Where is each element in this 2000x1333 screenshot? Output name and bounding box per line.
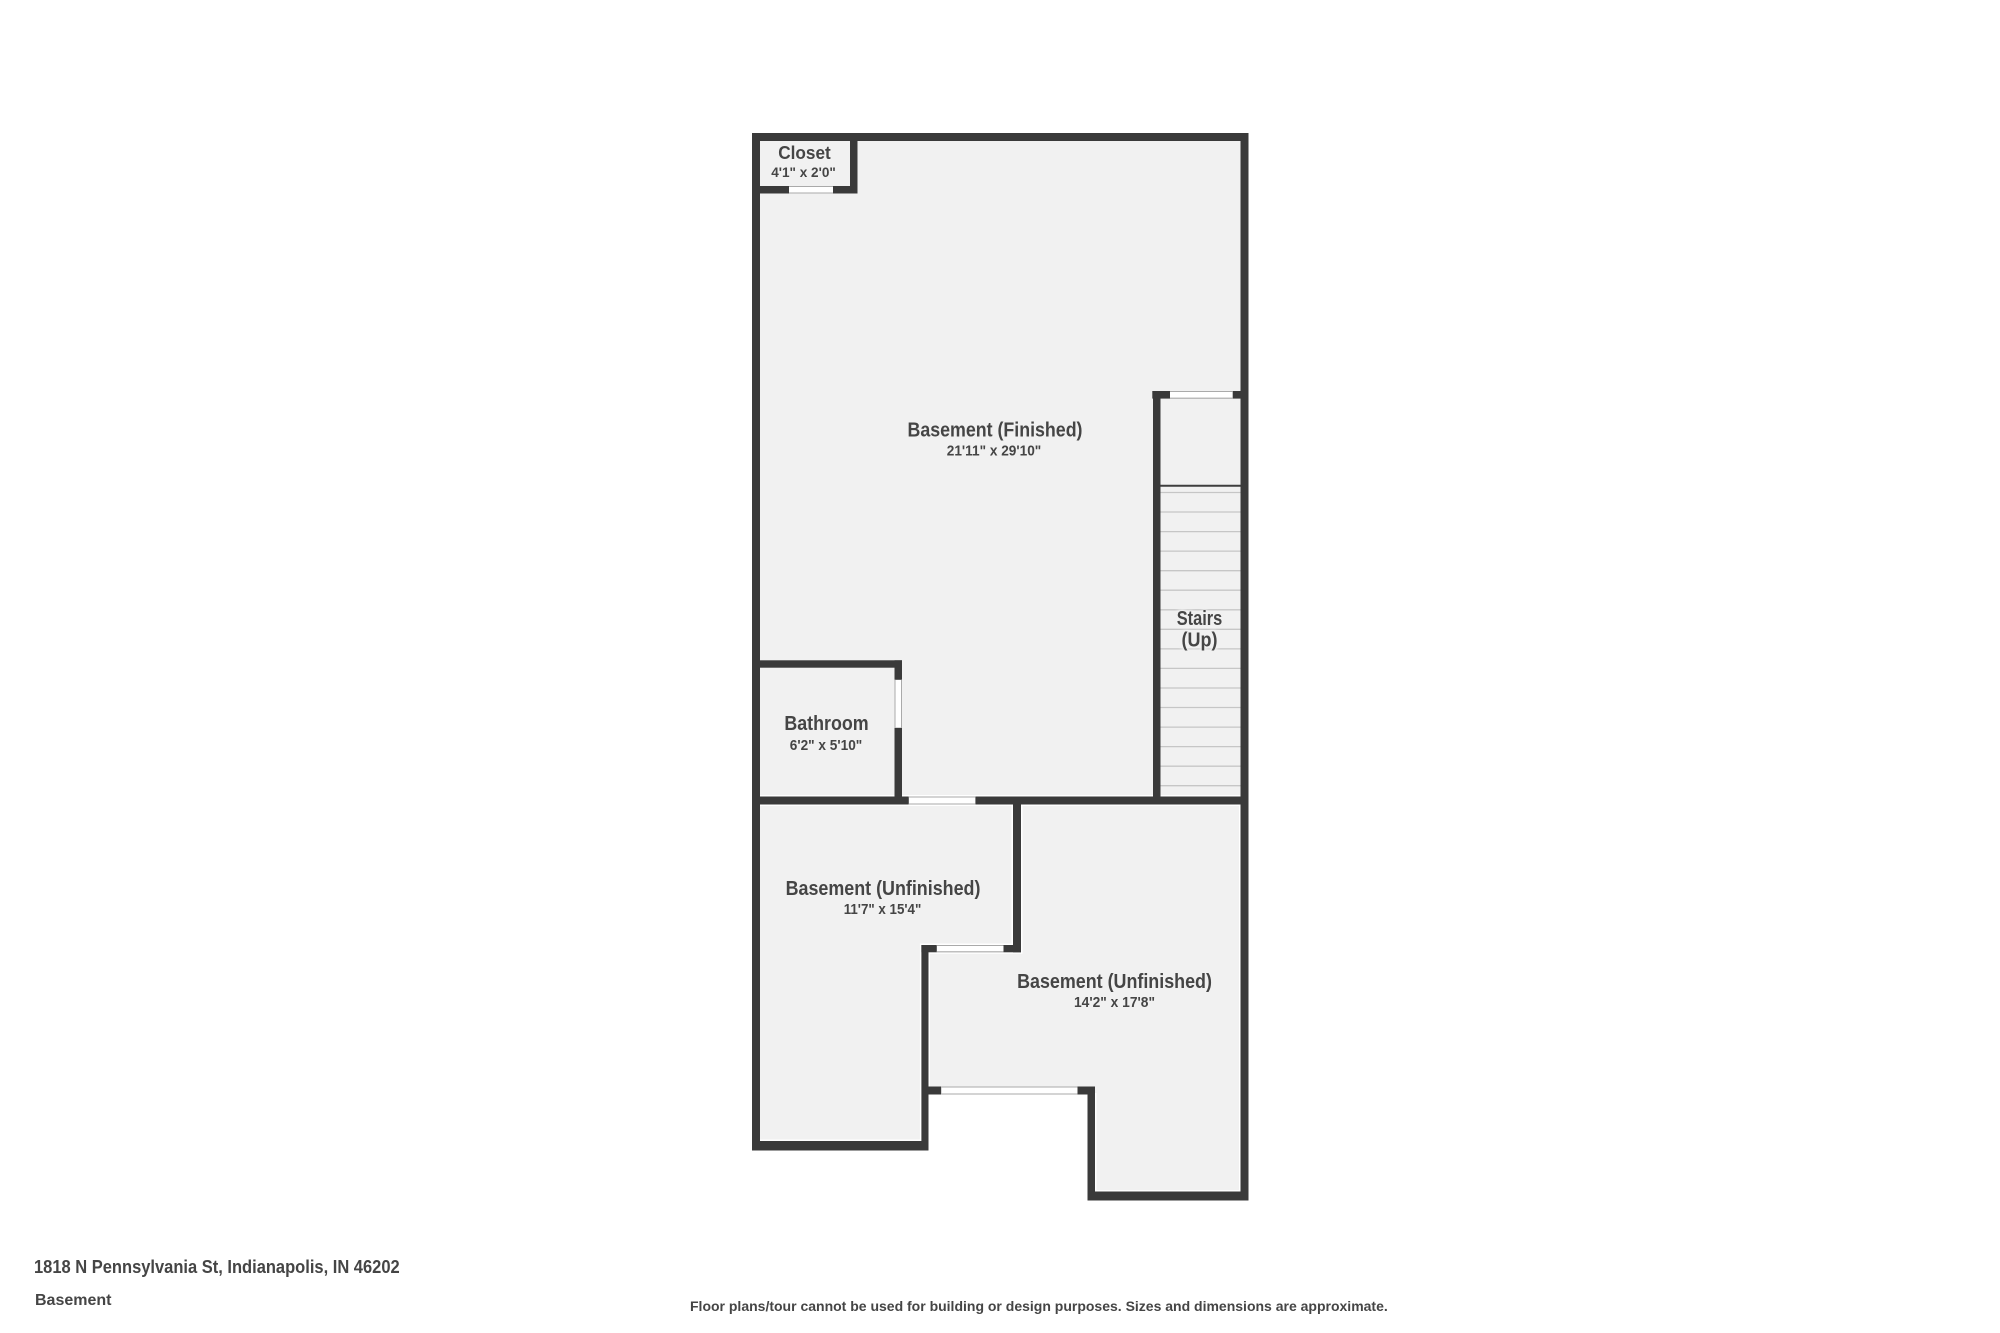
- svg-text:Closet: Closet: [778, 142, 831, 163]
- svg-text:Floor plans/tour cannot be use: Floor plans/tour cannot be used for buil…: [690, 1298, 1388, 1314]
- svg-text:Bathroom: Bathroom: [784, 713, 868, 735]
- svg-text:14'2" x 17'8": 14'2" x 17'8": [1074, 995, 1155, 1012]
- svg-text:11'7" x 15'4": 11'7" x 15'4": [844, 901, 922, 918]
- svg-text:Basement (Unfinished): Basement (Unfinished): [786, 878, 981, 900]
- svg-text:Basement (Unfinished): Basement (Unfinished): [1017, 971, 1212, 993]
- svg-text:Basement (Finished): Basement (Finished): [908, 420, 1083, 442]
- svg-text:(Up): (Up): [1182, 630, 1218, 652]
- svg-text:4'1" x 2'0": 4'1" x 2'0": [771, 165, 836, 180]
- svg-text:Stairs: Stairs: [1177, 606, 1223, 629]
- svg-text:21'11" x 29'10": 21'11" x 29'10": [947, 443, 1042, 460]
- svg-text:Basement: Basement: [35, 1292, 112, 1309]
- svg-text:6'2" x 5'10": 6'2" x 5'10": [790, 737, 863, 754]
- svg-text:1818 N Pennsylvania St, Indian: 1818 N Pennsylvania St, Indianapolis, IN…: [34, 1256, 400, 1277]
